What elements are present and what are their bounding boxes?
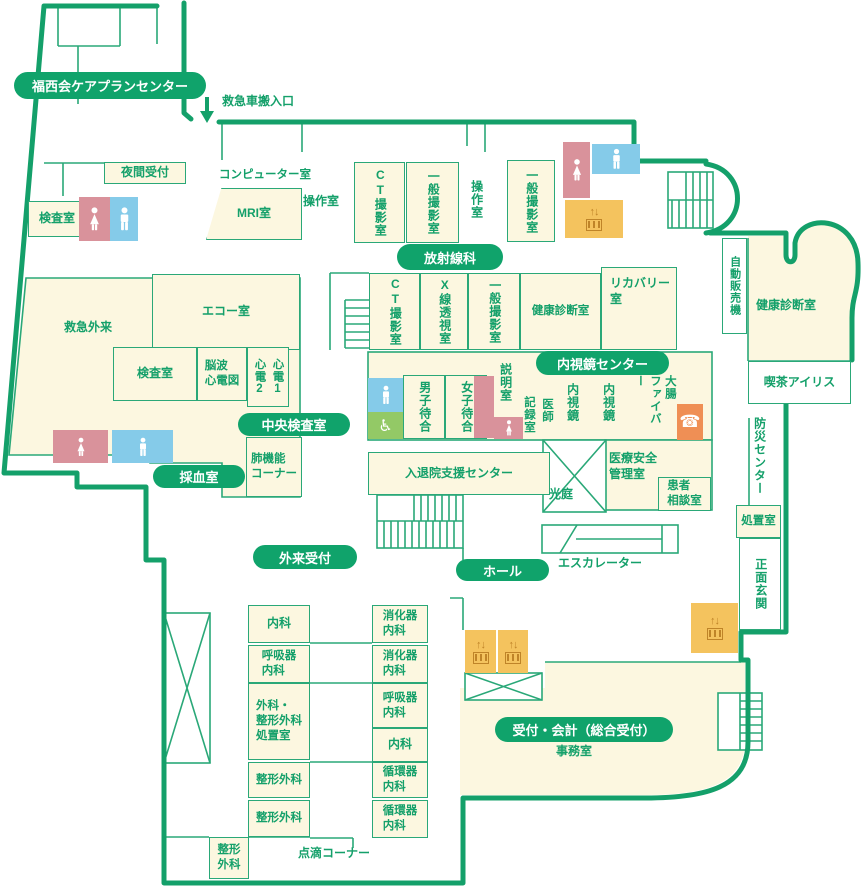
elevator-icon: ↑↓ [586, 207, 602, 231]
label-doctor: 医師 [539, 398, 554, 428]
phone-icon: ☎ [679, 412, 700, 432]
room-internal-2: 内科 [372, 728, 428, 762]
label-medical-safety: 医療安全 管理室 [609, 451, 657, 482]
label-emergency-outpatient: 救急外来 [64, 320, 112, 336]
label-operation-room-2: 操作室 [468, 180, 484, 242]
label-blood-draw: 採血室 [153, 465, 245, 488]
label-colon-fiber: 大腸 ファイバー [632, 375, 677, 437]
toilet-female-center [494, 417, 523, 439]
label-iv-corner: 点滴コーナー [298, 846, 370, 862]
room-cardio-2: 循環器 内科 [372, 800, 428, 838]
room-mri: MRI室 [206, 188, 302, 240]
room-health-checkup-1: 健康診断室 [520, 273, 601, 350]
toilet-male-w [112, 430, 173, 463]
escalator-shape [542, 525, 678, 553]
room-ct-1: CT撮影室 [354, 162, 405, 243]
void-center [465, 673, 542, 700]
room-exam-nw: 検査室 [28, 201, 86, 237]
label-ecg-2: 心電2 [252, 358, 267, 396]
room-xray-fluoroscopy: X線透視室 [420, 273, 468, 350]
toilet-male-ne [592, 144, 640, 174]
room-respiratory-1: 呼吸器 内科 [248, 645, 310, 683]
male-icon [137, 436, 149, 458]
stairs-radiology [345, 300, 370, 348]
female-icon [87, 206, 102, 232]
room-admission-support: 入退院支援センター [368, 452, 550, 495]
stairs-central [377, 495, 463, 548]
room-recovery: リカバリー 室 [601, 267, 677, 350]
label-health-checkup-2: 健康診断室 [756, 298, 816, 314]
hospital-floor-map: 福西会ケアプランセンター 放射線科 内視鏡センター 中央検査室 採血室 外来受付… [0, 0, 861, 896]
label-care-plan-center: 福西会ケアプランセンター [14, 72, 206, 99]
elevator-center-2: ↑↓ [498, 630, 528, 673]
toilet-male-center [368, 378, 403, 412]
toilet-female-center-bar [474, 376, 494, 438]
label-hall: ホール [456, 559, 549, 581]
toilet-female-ne [563, 142, 590, 198]
male-icon [610, 148, 623, 170]
label-computer-room: コンピューター室 [219, 168, 311, 183]
label-light-court: 光庭 [549, 487, 573, 503]
toilet-accessible-center: ♿ [368, 412, 403, 439]
toilet-female-w [53, 430, 108, 463]
elevator-icon: ↑↓ [707, 616, 723, 640]
female-icon [570, 158, 584, 182]
female-icon [75, 436, 87, 458]
room-ortho-1: 整形外科 [248, 762, 310, 798]
room-ortho-3: 整形 外科 [209, 837, 249, 879]
room-night-reception: 夜間受付 [104, 162, 186, 184]
room-mens-waiting: 男子待合 [403, 375, 445, 439]
female-icon [504, 419, 514, 437]
label-ambulance-entrance: 救急車搬入口 [222, 94, 294, 110]
room-vending: 自動販売機 [722, 238, 747, 334]
room-gastro-2: 消化器 内科 [372, 645, 428, 683]
room-cardio-1: 循環器 内科 [372, 762, 428, 798]
elevator-center-1: ↑↓ [465, 630, 496, 673]
label-endoscope-2: 内視鏡 [600, 383, 616, 425]
room-ortho-2: 整形外科 [248, 800, 310, 837]
label-endoscopy-center: 内視鏡センター [536, 351, 669, 375]
room-general-xray-3: 一般撮影室 [468, 273, 520, 350]
label-ecg-1: 心電1 [270, 358, 285, 396]
room-general-xray-2: 一般撮影室 [507, 160, 555, 242]
room-echo: エコー室 [152, 274, 300, 350]
male-icon [117, 206, 132, 232]
label-office: 事務室 [556, 744, 592, 760]
label-escalator: エスカレーター [558, 556, 642, 572]
label-radiology: 放射線科 [397, 244, 503, 270]
male-icon [380, 384, 392, 406]
room-main-entrance: 正面玄関 [739, 538, 781, 630]
room-respiratory-2: 呼吸器 内科 [372, 683, 428, 728]
label-disaster-center: 防災センター [751, 417, 767, 513]
stairs-bottom-right [718, 693, 762, 750]
elevator-se: ↑↓ [691, 603, 738, 653]
room-ecg: 心電2 心電1 [247, 347, 289, 407]
room-cafe: 喫茶アイリス [748, 361, 851, 404]
room-eeg-ecg: 脳波 心電図 [197, 347, 247, 401]
room-gastro-1: 消化器 内科 [372, 605, 428, 643]
room-treatment: 処置室 [736, 505, 781, 538]
label-operation-room-1: 操作室 [303, 194, 339, 210]
elevator-icon: ↑↓ [473, 640, 489, 664]
elevator-ne: ↑↓ [565, 200, 623, 238]
room-surgery-ortho: 外科・ 整形外科 処置室 [248, 683, 310, 760]
room-patient-consult: 患者 相談室 [658, 477, 711, 511]
room-lung-corner: 肺機能 コーナー [246, 437, 302, 497]
ambulance-arrow-icon [200, 97, 214, 123]
label-reception-accounting: 受付・会計（総合受付） [495, 717, 673, 742]
room-internal-1: 内科 [248, 605, 310, 643]
label-explanation-room: 説明室 [497, 363, 513, 413]
void-left [164, 613, 210, 763]
public-phone: ☎ [677, 404, 703, 440]
toilet-female-nw [79, 197, 110, 241]
label-outpatient-reception: 外来受付 [253, 545, 357, 569]
label-records-room: 記録室 [521, 396, 536, 438]
label-endoscope-1: 内視鏡 [564, 383, 580, 425]
room-ct-2: CT撮影室 [369, 273, 420, 350]
toilet-male-nw [110, 197, 138, 241]
elevator-icon: ↑↓ [505, 640, 521, 664]
room-general-xray-1: 一般撮影室 [406, 162, 459, 243]
label-central-lab: 中央検査室 [238, 413, 350, 436]
wheelchair-icon: ♿ [378, 416, 392, 436]
room-exam-w: 検査室 [113, 347, 197, 401]
stairs-top-right [668, 172, 713, 228]
